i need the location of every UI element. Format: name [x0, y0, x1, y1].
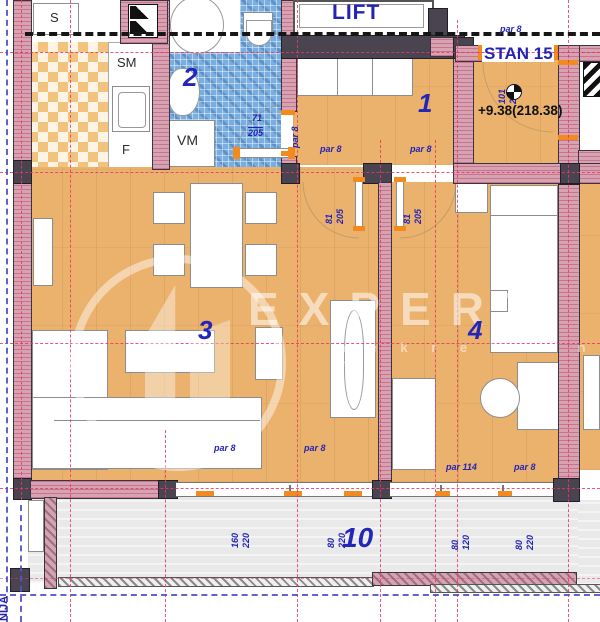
window-sill-mark	[344, 491, 362, 496]
column	[158, 480, 178, 499]
dim-par8-hall1: par 8	[320, 144, 342, 154]
door-post	[353, 177, 365, 182]
terrace-left-wall	[44, 497, 57, 589]
axis-line	[0, 488, 600, 489]
door-post	[353, 226, 365, 231]
dim-80-220-b: 80 220	[514, 502, 535, 550]
elevation-label: +9.38(218.38)	[478, 103, 562, 118]
window-room3	[176, 482, 372, 497]
dim-value: 81	[402, 184, 412, 224]
axis-line	[0, 578, 600, 579]
boundary-line	[6, 0, 8, 622]
dim-par8-hall2: par 8	[410, 144, 432, 154]
terrace-railing-right	[430, 584, 600, 593]
door-hinge	[233, 147, 240, 159]
axis-line	[70, 0, 71, 622]
edge-label: NIJA	[0, 585, 10, 621]
dim-81-205-door2: 81 205	[402, 184, 423, 224]
dim-value: 205	[335, 184, 345, 224]
fixture-s-label: S	[50, 10, 59, 25]
dim-par8-bottom1: par 8	[214, 443, 236, 453]
dim-160-220: 160 220	[230, 500, 251, 548]
dim-value: 80	[514, 502, 524, 550]
dim-par8-vertical: par 8	[290, 108, 300, 148]
room4-number: 4	[468, 315, 482, 346]
dim-par8-bottom3: par 8	[514, 462, 536, 472]
dim-81-205-door1: 81 205	[324, 184, 345, 224]
lift-label: LIFT	[332, 1, 380, 25]
axis-line	[0, 172, 600, 173]
watermark-brand: EXPERT	[248, 282, 552, 336]
door-post	[394, 177, 406, 182]
elevation-marker-icon	[506, 84, 522, 100]
dim-71: 71	[252, 113, 262, 123]
dim-value: 101	[497, 62, 507, 104]
axis-line	[21, 0, 22, 500]
window-sill-mark	[436, 491, 450, 496]
dim-205: 205	[248, 127, 263, 138]
dim-value: 80	[450, 502, 460, 550]
dim-value: 220	[241, 500, 251, 548]
stairs-hatch-symbol	[583, 62, 600, 97]
fixture-vm-label: VM	[177, 132, 198, 148]
fixture-f-label: F	[122, 142, 130, 157]
door-hinge	[288, 147, 295, 159]
window-sill-mark	[284, 491, 302, 496]
dim-par114: par 114	[446, 462, 477, 472]
stair-triangle	[130, 6, 154, 19]
dim-value: 220	[337, 500, 347, 548]
axis-line	[568, 0, 569, 622]
axis-line	[435, 140, 436, 622]
room2-number: 2	[183, 62, 197, 93]
dim-par8-bottom2: par 8	[304, 443, 326, 453]
boundary-line	[0, 594, 600, 596]
door-post	[394, 226, 406, 231]
door-leaf-room3	[355, 180, 363, 228]
dim-value: 81	[324, 184, 334, 224]
apartment-label: STAN 15	[484, 44, 553, 64]
room1-number: 1	[418, 88, 432, 119]
dim-value: 205	[413, 184, 423, 224]
dim-value: 220	[525, 502, 535, 550]
floor-plan: EXPERT n e k r e t n i n e LIFT STAN 15 …	[0, 0, 600, 622]
fixture-sm-label: SM	[117, 55, 137, 70]
dim-par8-top: par 8	[500, 24, 522, 34]
window-room4	[390, 482, 553, 497]
column	[560, 163, 580, 184]
column	[363, 163, 392, 184]
dim-80-220-a: 80 220	[326, 500, 347, 548]
dim-80-120: 80 120	[450, 502, 471, 550]
dim-value: 160	[230, 500, 240, 548]
dim-value: 80	[326, 500, 336, 548]
boundary-line	[20, 505, 22, 622]
wall-left	[13, 0, 32, 499]
axis-line	[380, 140, 381, 622]
window-sill-mark	[196, 491, 214, 496]
room3-number: 3	[198, 315, 212, 346]
window-sill-mark	[498, 491, 512, 496]
dim-value: par 8	[290, 108, 300, 148]
dim-value: 120	[461, 502, 471, 550]
edge-label-text: NIJA	[0, 585, 10, 621]
column	[372, 480, 392, 499]
column	[553, 478, 580, 502]
